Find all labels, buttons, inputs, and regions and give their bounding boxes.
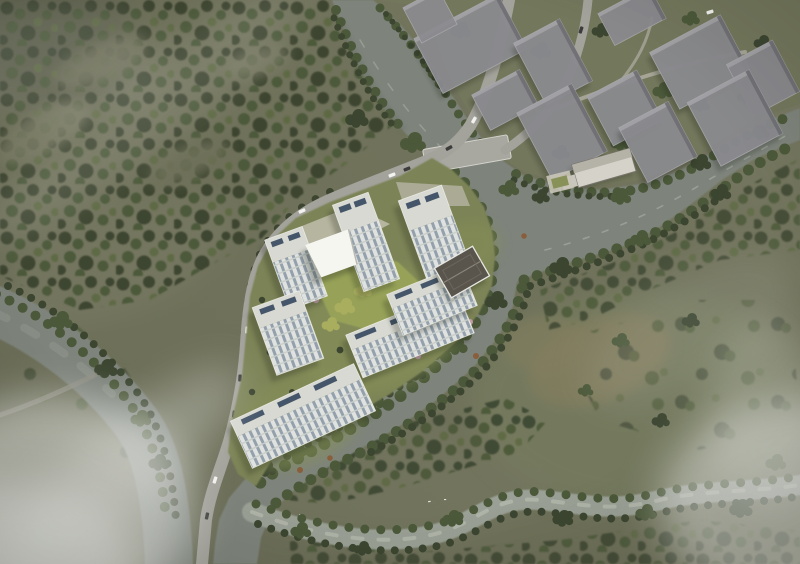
scene-svg [0,0,800,564]
aerial-site-rendering [0,0,800,564]
vignette [0,0,800,564]
